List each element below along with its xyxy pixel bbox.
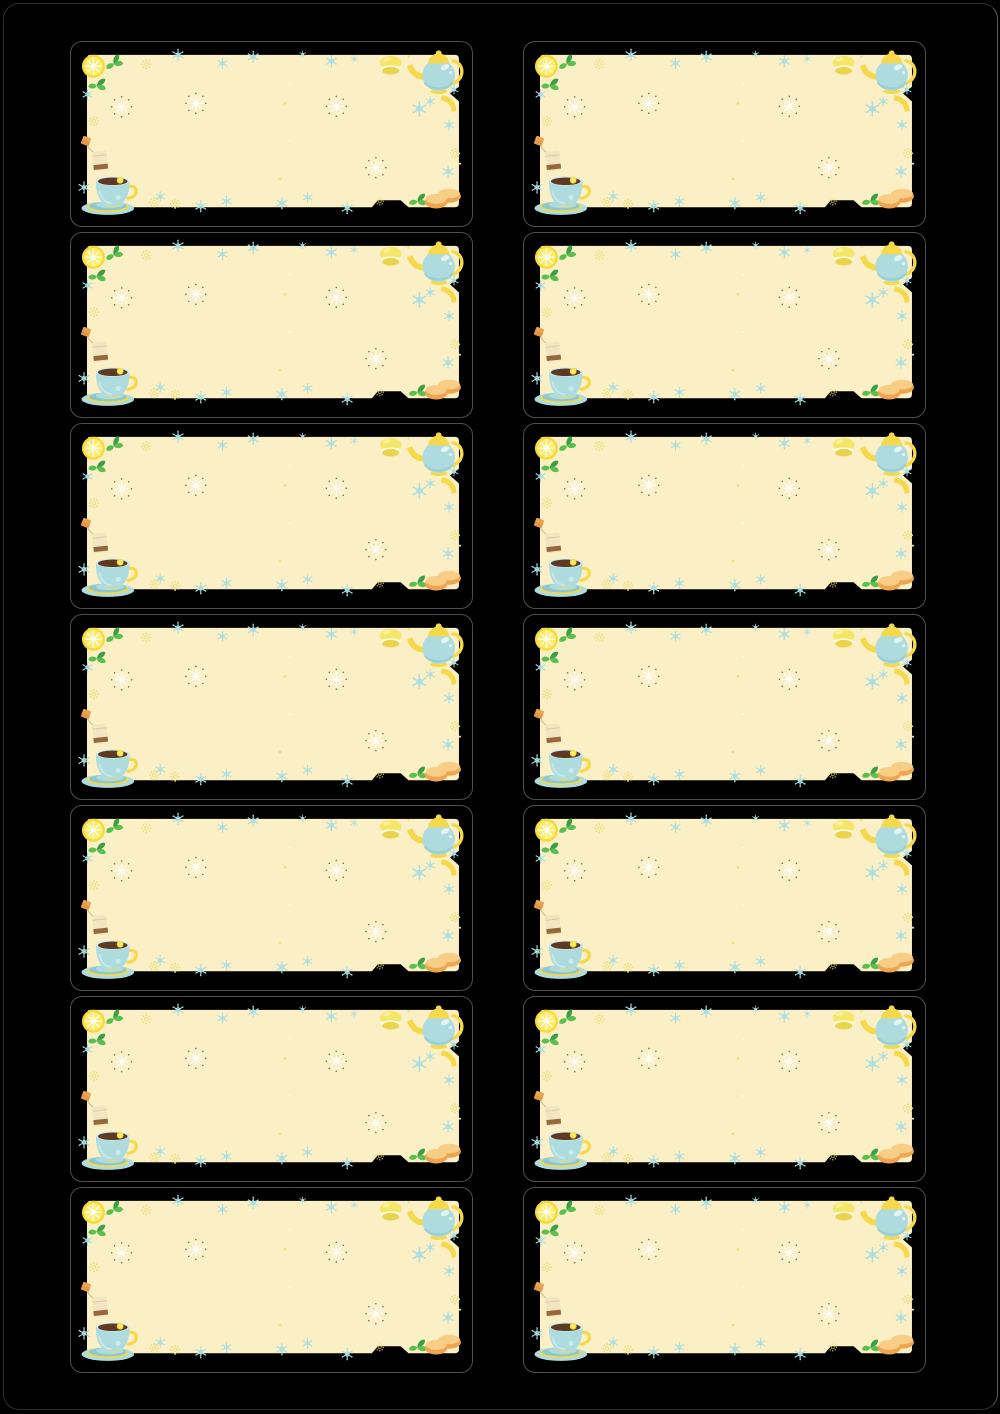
label-artwork — [71, 806, 472, 990]
label-artwork — [71, 233, 472, 417]
label-artwork — [71, 615, 472, 799]
page-background: { "document": { "kind": "printable-blank… — [0, 0, 1000, 1414]
label-r1c1 — [70, 41, 473, 227]
label-r6c1 — [70, 996, 473, 1182]
label-artwork — [524, 42, 925, 226]
label-artwork — [71, 42, 472, 226]
label-artwork — [524, 997, 925, 1181]
label-artwork — [524, 424, 925, 608]
label-artwork — [524, 233, 925, 417]
label-artwork — [524, 806, 925, 990]
label-artwork — [71, 424, 472, 608]
label-r2c2 — [523, 232, 926, 418]
label-sheet — [70, 41, 926, 1373]
label-r3c1 — [70, 423, 473, 609]
label-r2c1 — [70, 232, 473, 418]
label-r1c2 — [523, 41, 926, 227]
label-r3c2 — [523, 423, 926, 609]
label-r5c1 — [70, 805, 473, 991]
label-artwork — [524, 1188, 925, 1372]
label-artwork — [524, 615, 925, 799]
label-r6c2 — [523, 996, 926, 1182]
label-r7c2 — [523, 1187, 926, 1373]
label-r7c1 — [70, 1187, 473, 1373]
label-artwork — [71, 997, 472, 1181]
label-r5c2 — [523, 805, 926, 991]
label-r4c1 — [70, 614, 473, 800]
label-r4c2 — [523, 614, 926, 800]
label-artwork — [71, 1188, 472, 1372]
